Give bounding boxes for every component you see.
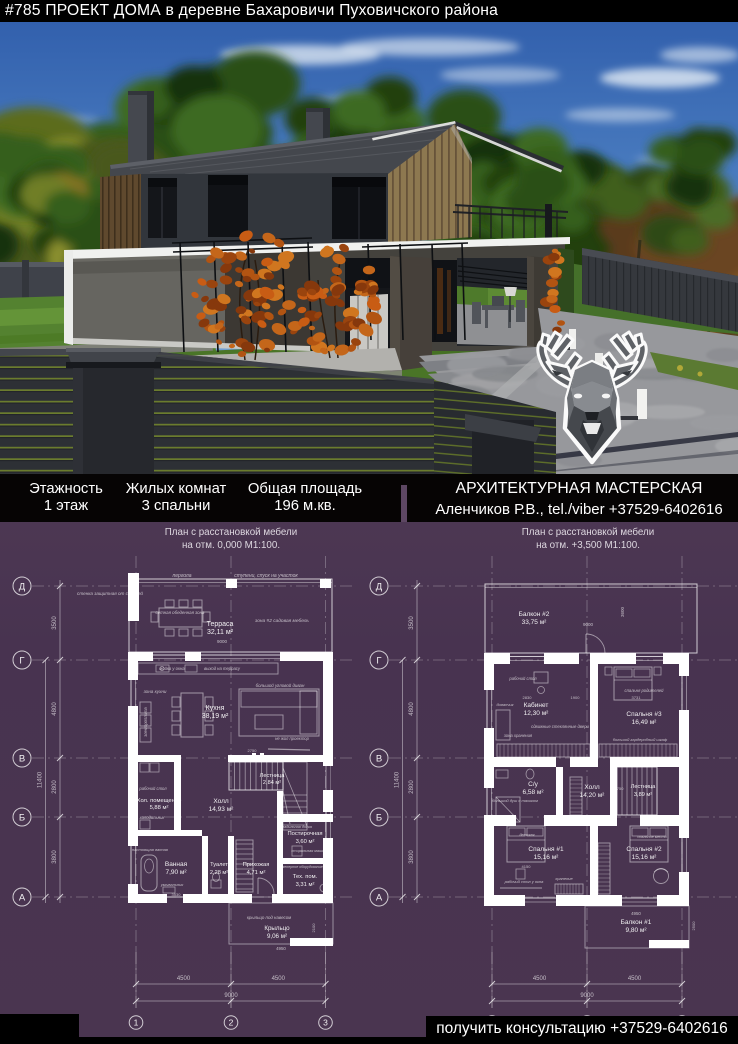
svg-text:спальня родителей: спальня родителей [625, 688, 665, 693]
svg-text:Лестница: Лестница [631, 784, 657, 790]
svg-text:15,16 м²: 15,16 м² [534, 854, 560, 861]
svg-text:спальное место: спальное место [637, 835, 666, 839]
svg-text:3800: 3800 [409, 850, 415, 864]
svg-text:4500: 4500 [628, 976, 642, 982]
svg-text:настоящая ванная: настоящая ванная [132, 847, 169, 852]
svg-text:4800: 4800 [52, 702, 58, 716]
svg-text:Прихожая: Прихожая [243, 862, 270, 868]
svg-text:2,84 м²: 2,84 м² [263, 780, 281, 786]
svg-text:Балкон #2: Балкон #2 [519, 611, 550, 618]
svg-text:4500: 4500 [177, 976, 191, 982]
svg-text:рабочий стол: рабочий стол [138, 786, 167, 791]
svg-text:Г: Г [376, 655, 381, 666]
svg-text:9000: 9000 [217, 639, 228, 644]
svg-text:Постирочная: Постирочная [287, 831, 322, 837]
svg-text:электроплита: электроплита [143, 707, 148, 737]
svg-text:Б: Б [376, 812, 382, 823]
svg-text:рабочий стол: рабочий стол [508, 676, 537, 681]
svg-text:3500: 3500 [409, 616, 415, 630]
svg-text:4800: 4800 [409, 702, 415, 716]
svg-text:Терраса: Терраса [207, 621, 234, 628]
svg-text:14,93 м²: 14,93 м² [209, 806, 235, 813]
svg-text:12,30 м²: 12,30 м² [524, 710, 550, 717]
svg-text:стиральная машина: стиральная машина [292, 849, 329, 853]
svg-text:3731: 3731 [632, 695, 642, 700]
svg-text:большой угловой диван: большой угловой диван [256, 683, 305, 688]
svg-text:1900: 1900 [571, 695, 581, 700]
svg-text:3: 3 [323, 1018, 328, 1028]
svg-text:9000: 9000 [224, 993, 238, 999]
svg-text:16,49 м²: 16,49 м² [632, 719, 658, 726]
svg-text:11400: 11400 [38, 771, 44, 788]
svg-text:диванчик: диванчик [496, 702, 514, 707]
svg-text:Туалет: Туалет [210, 862, 228, 868]
svg-text:холодильник: холодильник [139, 815, 166, 820]
svg-text:зона хранения: зона хранения [503, 733, 533, 738]
svg-text:2: 2 [229, 1018, 234, 1028]
svg-text:Холл: Холл [213, 798, 229, 805]
svg-text:32,11 м²: 32,11 м² [207, 629, 234, 636]
svg-text:2100: 2100 [311, 923, 316, 933]
svg-text:ступени, спуск на участок: ступени, спуск на участок [234, 573, 298, 579]
svg-text:6,58 м²: 6,58 м² [522, 789, 544, 796]
svg-text:Лестница: Лестница [260, 773, 286, 779]
svg-text:стенка защитная от соседей: стенка защитная от соседей [77, 590, 143, 596]
svg-text:4,71 м²: 4,71 м² [247, 870, 266, 876]
svg-text:Спальня #1: Спальня #1 [528, 846, 564, 853]
svg-text:9000: 9000 [583, 622, 594, 627]
svg-text:4950: 4950 [631, 911, 641, 916]
svg-text:В: В [376, 753, 382, 764]
svg-text:Хол. помещение: Хол. помещение [137, 798, 182, 804]
svg-text:9,80 м²: 9,80 м² [625, 927, 647, 934]
svg-text:А: А [19, 892, 26, 903]
svg-text:А: А [376, 892, 383, 903]
svg-text:сдвижные стеклянные двери: сдвижные стеклянные двери [531, 724, 589, 729]
svg-text:9000: 9000 [580, 993, 594, 999]
svg-text:2800: 2800 [409, 780, 415, 794]
svg-text:В: В [19, 753, 25, 764]
svg-text:14,20 м²: 14,20 м² [580, 792, 606, 799]
svg-text:4500: 4500 [272, 976, 286, 982]
svg-text:Д: Д [19, 581, 26, 592]
svg-text:Г: Г [19, 655, 24, 666]
svg-text:умывальник: умывальник [160, 882, 185, 887]
svg-text:рабочий стол у окна: рабочий стол у окна [504, 879, 545, 884]
svg-text:сетная обеденная зона: сетная обеденная зона [156, 610, 206, 615]
svg-text:15,16 м²: 15,16 м² [632, 854, 658, 861]
svg-text:зона #2 садовая мебель: зона #2 садовая мебель [254, 618, 309, 624]
svg-text:Кабинет: Кабинет [524, 701, 549, 709]
svg-text:4500: 4500 [533, 976, 547, 982]
svg-text:Ванная: Ванная [165, 861, 188, 868]
svg-text:Спальня #3: Спальня #3 [626, 711, 662, 718]
svg-text:С/у: С/у [528, 781, 539, 788]
svg-text:33,75 м²: 33,75 м² [522, 619, 548, 626]
svg-text:Балкон #1: Балкон #1 [621, 919, 652, 926]
svg-text:большой гардеробный шкаф: большой гардеробный шкаф [613, 737, 668, 742]
svg-text:2800: 2800 [52, 780, 58, 794]
svg-text:Б: Б [19, 812, 25, 823]
svg-text:2830: 2830 [523, 695, 533, 700]
svg-text:Крыльцо: Крыльцо [264, 925, 290, 932]
svg-text:хранение: хранение [554, 876, 573, 881]
svg-text:3,31 м²: 3,31 м² [296, 882, 315, 888]
svg-text:3600: 3600 [620, 606, 625, 617]
svg-text:11400: 11400 [395, 771, 401, 788]
svg-text:выход на террасу: выход на террасу [204, 666, 241, 671]
svg-text:Холл: Холл [584, 784, 600, 791]
svg-text:мойка у окна: мойка у окна [159, 666, 185, 671]
svg-text:крыльцо под навесом: крыльцо под навесом [247, 915, 291, 920]
svg-text:38,19 м²: 38,19 м² [202, 713, 229, 720]
svg-text:3,89 м²: 3,89 м² [634, 792, 652, 798]
svg-text:Тех. пом.: Тех. пом. [293, 874, 318, 880]
svg-text:не жол проектор: не жол проектор [275, 736, 310, 741]
svg-text:Спальня #2: Спальня #2 [626, 846, 662, 853]
svg-text:детская: детская [519, 833, 534, 837]
svg-text:5,88 м²: 5,88 м² [150, 805, 169, 811]
svg-text:пергола: пергола [173, 573, 192, 579]
svg-text:зона кухни: зона кухни [143, 689, 167, 694]
svg-text:3800: 3800 [52, 850, 58, 864]
svg-text:Д: Д [376, 581, 383, 592]
svg-text:инженерное оборудование дома: инженерное оборудование дома [278, 865, 332, 869]
svg-text:4950: 4950 [276, 946, 286, 951]
svg-text:3,60 м²: 3,60 м² [296, 839, 315, 845]
svg-text:3500: 3500 [52, 616, 58, 630]
svg-text:2750: 2750 [248, 748, 258, 753]
svg-text:4150: 4150 [522, 864, 532, 869]
svg-text:9,06 м²: 9,06 м² [267, 933, 287, 940]
svg-text:гладильная доска: гладильная доска [280, 825, 312, 829]
svg-text:2500: 2500 [691, 921, 696, 931]
svg-text:1: 1 [134, 1018, 139, 1028]
svg-text:7,90 м²: 7,90 м² [165, 869, 187, 876]
